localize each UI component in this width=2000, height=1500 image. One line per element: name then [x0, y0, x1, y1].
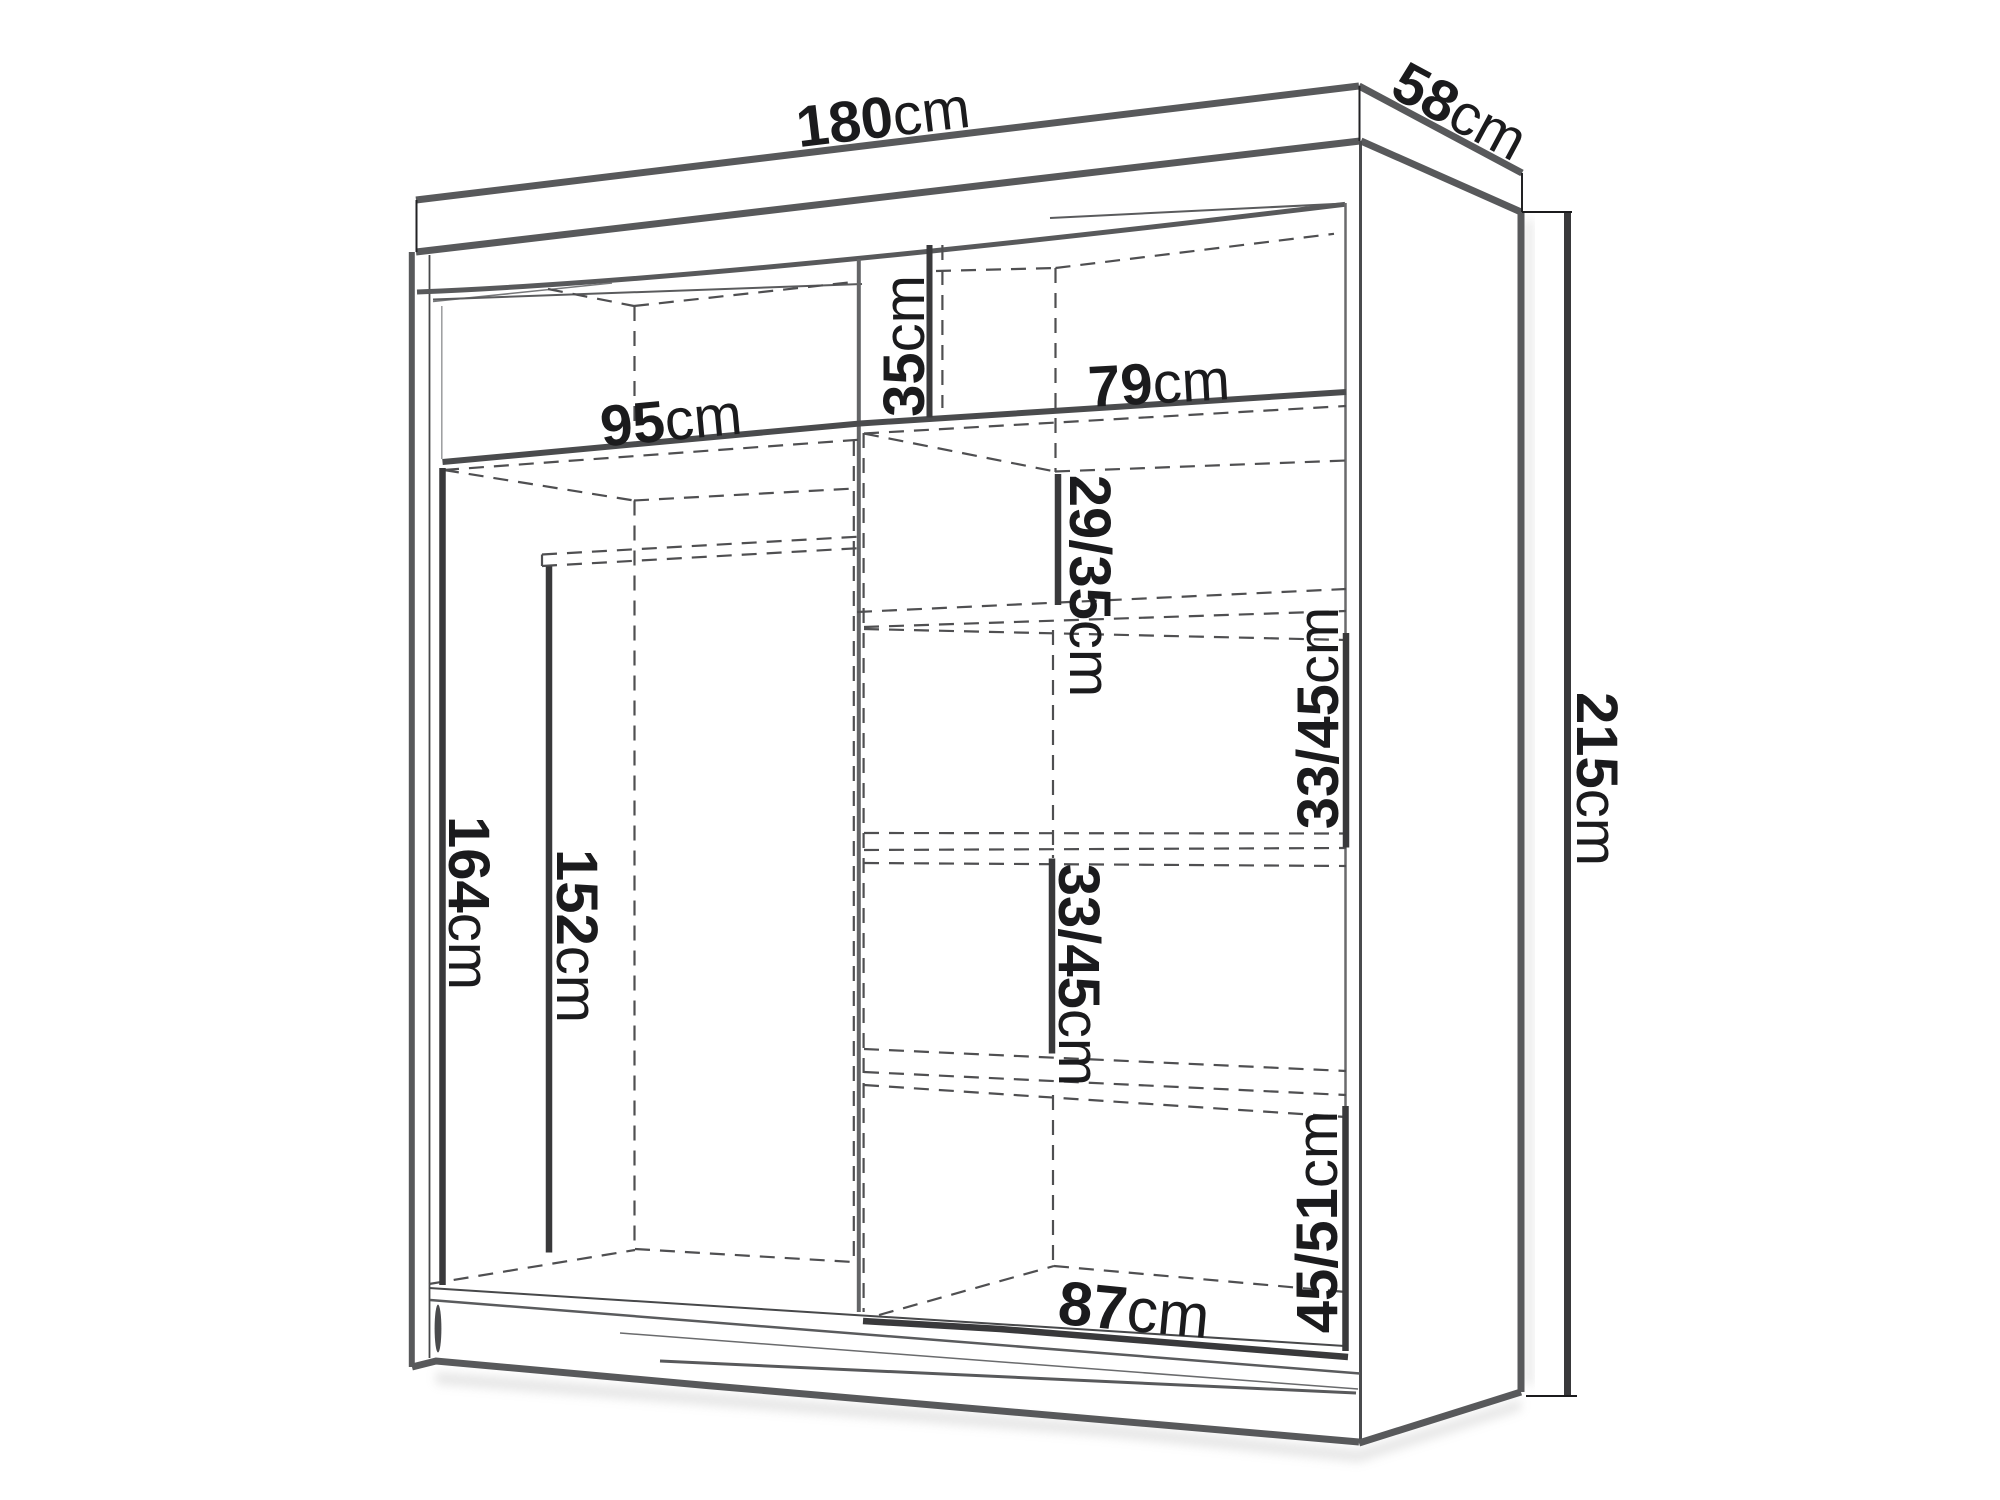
- svg-text:95cm: 95cm: [597, 381, 744, 459]
- svg-text:180cm: 180cm: [793, 74, 974, 159]
- svg-text:33/45cm: 33/45cm: [1286, 607, 1351, 829]
- svg-text:152cm: 152cm: [545, 849, 610, 1023]
- svg-text:164cm: 164cm: [437, 816, 502, 990]
- svg-text:35cm: 35cm: [872, 275, 937, 417]
- svg-text:87cm: 87cm: [1055, 1268, 1213, 1351]
- svg-text:45/51cm: 45/51cm: [1285, 1111, 1350, 1333]
- svg-text:215cm: 215cm: [1565, 692, 1630, 866]
- svg-text:79cm: 79cm: [1086, 347, 1231, 420]
- svg-text:33/45cm: 33/45cm: [1047, 864, 1112, 1086]
- svg-text:58cm: 58cm: [1382, 49, 1538, 173]
- svg-text:29/35cm: 29/35cm: [1058, 475, 1123, 697]
